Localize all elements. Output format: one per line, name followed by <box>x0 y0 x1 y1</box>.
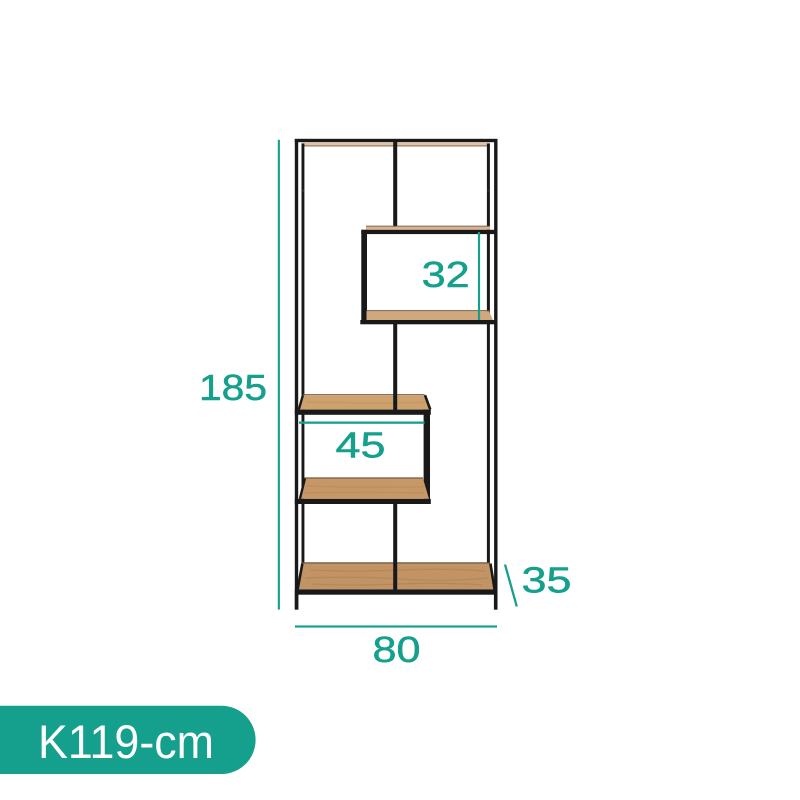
svg-text:35: 35 <box>522 560 572 601</box>
svg-text:K119-cm: K119-cm <box>38 715 214 768</box>
svg-text:45: 45 <box>336 425 386 466</box>
svg-text:32: 32 <box>422 254 470 295</box>
svg-text:80: 80 <box>373 629 421 670</box>
svg-text:185: 185 <box>199 367 267 408</box>
